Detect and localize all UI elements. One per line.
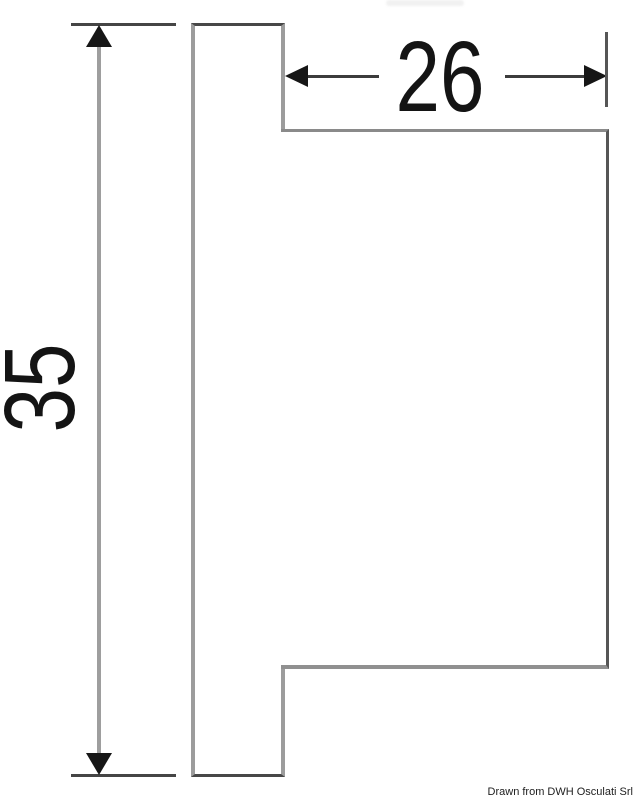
technical-drawing-canvas: 35 26 Drawn from DWH Osculati Srl [0,0,636,800]
extension-line-right [605,32,608,107]
width-dimension-line-left [307,75,379,78]
height-dimension-label: 35 [0,340,90,436]
arrow-right-icon [584,65,607,87]
height-dimension-line [97,28,101,772]
rear-body-outline [281,129,609,669]
cropped-text-artifact [386,0,464,6]
arrow-down-icon [86,753,112,775]
front-flange-outline [191,23,285,777]
arrow-up-icon [86,25,112,47]
arrow-left-icon [285,65,308,87]
credit-text: Drawn from DWH Osculati Srl [488,786,633,798]
width-dimension-line-right [505,75,586,78]
width-dimension-label: 26 [392,28,488,126]
